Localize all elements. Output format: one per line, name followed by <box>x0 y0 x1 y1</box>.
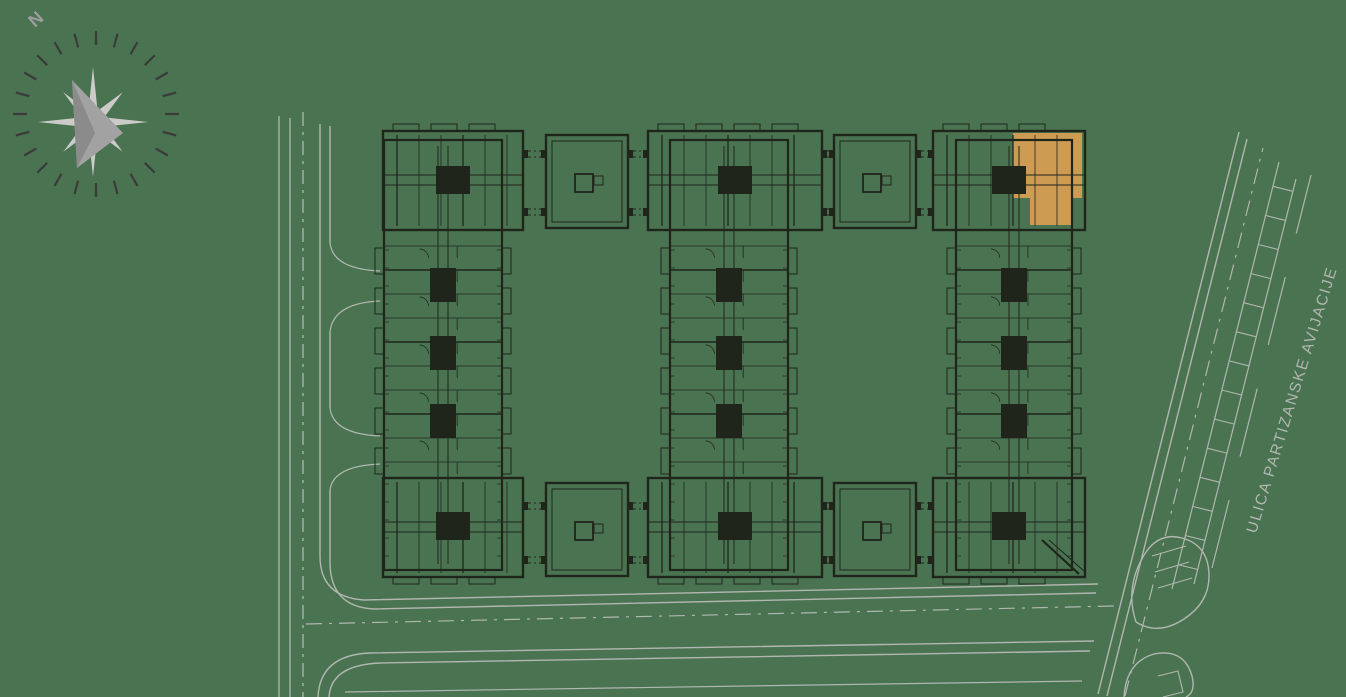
door-arc <box>705 393 714 402</box>
balcony <box>502 328 511 354</box>
road-line <box>1158 671 1183 697</box>
connector-node <box>523 150 528 158</box>
door-arc <box>991 249 1000 258</box>
balcony <box>375 248 384 274</box>
connector-node <box>822 150 827 158</box>
pavilion-core-annex <box>882 176 891 185</box>
connector-node <box>916 208 921 216</box>
stair-core <box>716 268 742 302</box>
connector-node <box>541 556 546 564</box>
connector-node <box>822 556 827 564</box>
connector-node <box>928 150 933 158</box>
stair-core <box>430 268 456 302</box>
door-arc <box>705 441 714 450</box>
pavilion-core-annex <box>594 524 603 533</box>
parking-stall-line <box>1273 186 1292 191</box>
wall-line <box>1049 540 1084 571</box>
balcony <box>375 408 384 434</box>
compass-tick <box>156 73 168 80</box>
connector-node <box>928 502 933 510</box>
pavilion-core-annex <box>594 176 603 185</box>
road-line <box>1125 148 1263 696</box>
balcony <box>1072 248 1081 274</box>
door-arc <box>419 393 428 402</box>
parking-stall-line <box>1215 419 1234 424</box>
compass-tick <box>114 34 118 48</box>
compass-tick <box>75 181 79 195</box>
pavilion-outline <box>546 135 628 228</box>
parking-stall-line <box>1207 448 1226 453</box>
balcony <box>502 248 511 274</box>
compass-tick <box>156 149 168 156</box>
parking-stall-line <box>1251 274 1270 279</box>
connector-node <box>822 208 827 216</box>
connector-node <box>523 502 528 510</box>
road-line <box>1107 139 1247 696</box>
compass-north-label: N <box>24 7 47 31</box>
compass-tick <box>16 93 30 97</box>
connector-node <box>643 150 648 158</box>
stair-core <box>1001 404 1027 438</box>
balcony <box>788 288 797 314</box>
pavilion-inner <box>552 141 622 222</box>
balcony <box>788 448 797 474</box>
road-line <box>330 408 380 436</box>
stair-core <box>1001 336 1027 370</box>
stair-core <box>430 336 456 370</box>
balcony <box>661 448 670 474</box>
parking-stall-line <box>1258 245 1277 250</box>
connector-node <box>829 208 834 216</box>
parking-stall-line <box>1200 477 1219 482</box>
balcony <box>1072 368 1081 394</box>
balcony <box>947 448 956 474</box>
road-line <box>330 464 380 490</box>
balcony <box>947 248 956 274</box>
compass-tick <box>24 149 36 156</box>
connector-node <box>829 150 834 158</box>
balcony <box>947 408 956 434</box>
pavilion-outline <box>834 135 916 228</box>
pavilion-outline <box>834 483 916 576</box>
door-arc <box>705 297 714 306</box>
site-plan-canvas: N ULICA PARTIZANSKE AVIJACIJE <box>0 0 1346 697</box>
door-arc <box>991 345 1000 354</box>
compass-tick <box>114 181 118 195</box>
balcony <box>375 328 384 354</box>
balcony <box>661 408 670 434</box>
compass-tick <box>16 132 30 136</box>
parking-stall-line <box>1193 506 1212 511</box>
balcony <box>502 368 511 394</box>
door-arc <box>419 441 428 450</box>
balcony <box>661 288 670 314</box>
compass-tick <box>75 34 79 48</box>
compass-tick <box>145 163 155 173</box>
balcony <box>947 368 956 394</box>
connector-node <box>643 208 648 216</box>
pavilion-inner <box>840 141 910 222</box>
compass-tick <box>163 93 177 97</box>
parking-stall-line <box>1229 361 1248 366</box>
door-arc <box>419 345 428 354</box>
stair-core <box>1001 268 1027 302</box>
street-label: ULICA PARTIZANSKE AVIJACIJE <box>1244 265 1341 535</box>
compass-tick <box>163 132 177 136</box>
door-arc <box>419 297 428 306</box>
stair-core <box>992 512 1026 540</box>
connector-node <box>822 502 827 510</box>
connector-node <box>916 556 921 564</box>
door-arc <box>419 249 428 258</box>
pavilion-core <box>575 522 593 540</box>
connector-node <box>541 150 546 158</box>
pavilion-core <box>863 174 881 192</box>
pavilion-inner <box>552 489 622 570</box>
connector-node <box>541 208 546 216</box>
balcony <box>1072 448 1081 474</box>
connector-node <box>916 502 921 510</box>
balcony <box>375 448 384 474</box>
road-line <box>306 606 1114 624</box>
road-line <box>1158 578 1192 588</box>
balcony <box>502 408 511 434</box>
parking-stall-line <box>1236 332 1255 337</box>
road-line <box>1155 562 1189 572</box>
door-arc <box>705 345 714 354</box>
balcony <box>788 408 797 434</box>
stair-core <box>430 404 456 438</box>
balcony <box>502 288 511 314</box>
compass-tick <box>131 42 138 54</box>
balcony <box>1072 288 1081 314</box>
stair-core <box>436 512 470 540</box>
compass-tick <box>145 55 155 65</box>
compass-tick <box>131 174 138 186</box>
balcony <box>788 328 797 354</box>
stair-core <box>716 336 742 370</box>
connector-node <box>928 556 933 564</box>
compass-tick <box>24 73 36 80</box>
balcony <box>788 368 797 394</box>
parking-stall-line <box>1222 390 1241 395</box>
balcony <box>788 248 797 274</box>
balcony <box>502 448 511 474</box>
connector-node <box>916 150 921 158</box>
balcony <box>1072 408 1081 434</box>
stair-core <box>992 166 1026 194</box>
balcony <box>947 288 956 314</box>
stair-core <box>716 404 742 438</box>
balcony <box>375 368 384 394</box>
balcony <box>661 328 670 354</box>
site-plan: N ULICA PARTIZANSKE AVIJACIJE <box>0 0 1346 697</box>
door-arc <box>991 393 1000 402</box>
road-line <box>330 243 380 271</box>
balcony <box>947 328 956 354</box>
compass-tick <box>55 174 62 186</box>
road-line <box>330 301 380 332</box>
pavilion-inner <box>840 489 910 570</box>
door-arc <box>991 297 1000 306</box>
road-line <box>345 681 1082 692</box>
balcony <box>661 248 670 274</box>
connector-node <box>523 208 528 216</box>
compass-tick <box>55 42 62 54</box>
road-line <box>1098 132 1239 694</box>
road-line <box>318 641 1094 697</box>
connector-node <box>628 150 633 158</box>
pavilion-core-annex <box>882 524 891 533</box>
stair-core <box>436 166 470 194</box>
connector-node <box>643 502 648 510</box>
pavilion-core <box>575 174 593 192</box>
connector-node <box>628 556 633 564</box>
parking-stall-line <box>1266 215 1285 220</box>
pavilion-core <box>863 522 881 540</box>
stair-core <box>718 512 752 540</box>
connector-node <box>541 502 546 510</box>
connector-node <box>523 556 528 564</box>
connector-node <box>643 556 648 564</box>
connector-node <box>829 502 834 510</box>
pavilion-outline <box>546 483 628 576</box>
connector-node <box>628 502 633 510</box>
connector-node <box>628 208 633 216</box>
compass-tick <box>37 163 47 173</box>
compass-rose <box>13 31 179 197</box>
door-arc <box>705 249 714 258</box>
road-line <box>330 490 1096 609</box>
door-arc <box>991 441 1000 450</box>
compass-tick <box>37 55 47 65</box>
connector-node <box>928 208 933 216</box>
stair-core <box>718 166 752 194</box>
balcony <box>1072 328 1081 354</box>
balcony <box>661 368 670 394</box>
building-floor-plan <box>375 124 1085 584</box>
parking-stall-line <box>1244 303 1263 308</box>
parking-stall-line <box>1178 565 1197 570</box>
connector-node <box>829 556 834 564</box>
